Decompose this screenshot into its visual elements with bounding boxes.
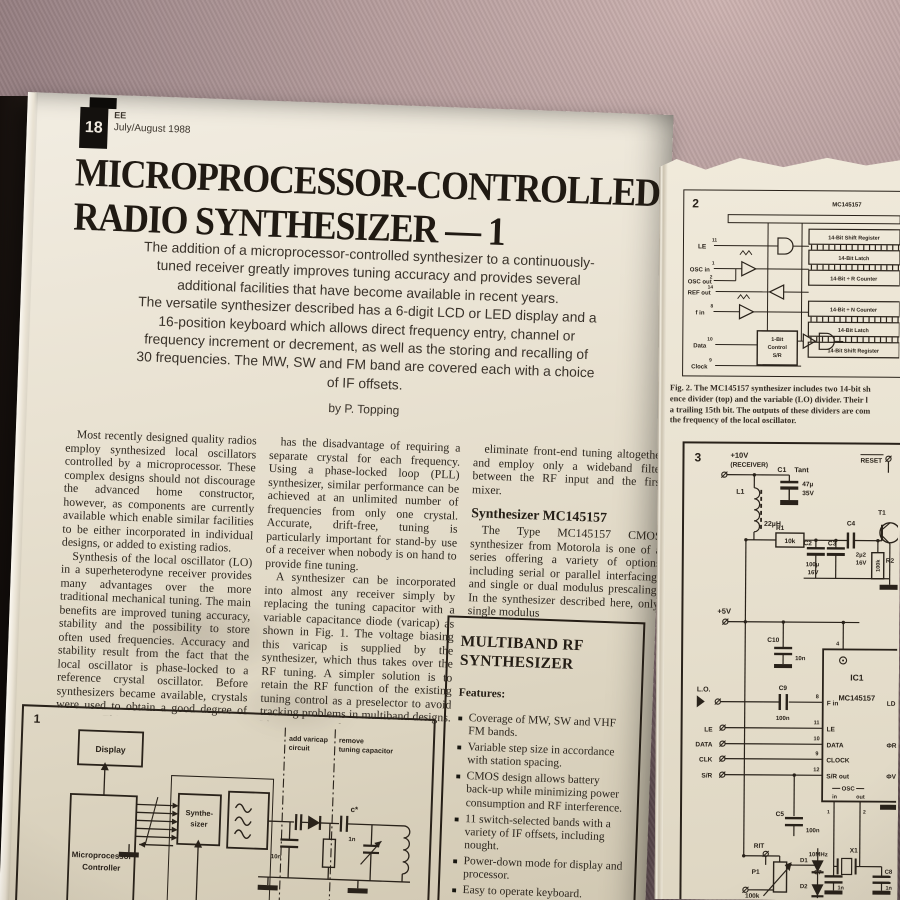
fig3-pin-clock: CLOCK [826, 757, 849, 764]
fig3-pin-le: LE [827, 726, 836, 733]
fig3-r2-value: 100k [876, 559, 882, 572]
fig3-pin-phi-r: ΦR [886, 743, 896, 750]
fig3-c10-label: C10 [767, 637, 779, 644]
feature-text: Variable step size in accordance with st… [467, 741, 627, 773]
synth-label-1: Synthe- [185, 808, 213, 818]
fig3-r1-label: R1 [776, 525, 785, 532]
fig3-terminal-data: DATA [695, 741, 712, 748]
feature-item: ■11 switch-selected bands with a variety… [453, 812, 624, 857]
column2-paragraph-1: has the disadvantage of requiring a sepa… [265, 435, 461, 577]
bullet-square-icon: ■ [455, 770, 461, 809]
column1-paragraph-2: Synthesis of the local oscillator (LO) i… [56, 549, 253, 720]
fig3-osc-in: in [832, 794, 838, 800]
article-standfirst: The addition of a microprocessor-control… [134, 238, 601, 402]
fig3-pin-ld: LD [887, 701, 896, 708]
fig3-d1-label: D1 [800, 858, 808, 864]
features-box-title: MULTIBAND RF SYNTHESIZER [460, 632, 631, 676]
fig2-pin-le: LE [698, 243, 707, 250]
left-page: 18 EE July/August 1988 MICROPROCESSOR-CO… [0, 92, 674, 900]
fig3-c2-value-1: 100µ [806, 562, 820, 568]
fig3-c5-value: 100n [806, 828, 820, 834]
fig3-ic1-label: IC1 [850, 673, 864, 683]
page-number-badge: 18 [79, 107, 108, 149]
fig3-x1-label: X1 [850, 848, 858, 855]
fig3-c9-label: C9 [779, 685, 788, 692]
figure-2-number: 2 [692, 196, 699, 210]
feature-text: 11 switch-selected bands with a variety … [464, 813, 624, 858]
fig3-c1-value-1: 47µ [802, 481, 813, 488]
remove-cap-label-2: tuning capacitor [339, 747, 394, 756]
fig3-pin-sr-out: S/R out [826, 773, 850, 780]
fig3-c1-value-2: 35V [802, 490, 814, 497]
magazine-name: EE [114, 110, 126, 120]
feature-text: CMOS design allows battery back-up while… [465, 771, 625, 816]
fig3-terminal-sr: S/R [701, 772, 712, 779]
figure-1-number: 1 [33, 712, 40, 726]
micro-label-2: Controller [82, 862, 121, 872]
fig3-x1-value: 10MHz [809, 852, 828, 858]
right-page: 2 MC145157 14-Bit Shift Register 14-Bit … [654, 155, 900, 900]
fig2-pin-clock: Clock [691, 364, 708, 370]
fig3-pin-data-number: 10 [814, 736, 820, 742]
features-box: MULTIBAND RF SYNTHESIZER Features: ■Cove… [436, 615, 646, 900]
magazine-photo: 18 EE July/August 1988 MICROPROCESSOR-CO… [0, 0, 900, 900]
feature-item: ■Variable step size in accordance with s… [456, 741, 627, 773]
fig2-pin-data-number: 10 [707, 336, 713, 342]
figure-2-caption: Fig. 2. The MC145157 synthesizer include… [670, 383, 900, 428]
fig1-boxes [66, 730, 287, 900]
fig2-block-shift-register-bottom: 14-Bit Shift Register [827, 348, 879, 354]
fig3-c7-value: 1n [837, 885, 844, 891]
micro-label-1: Microprocessor [72, 850, 132, 861]
bullet-square-icon: ■ [451, 884, 456, 897]
figure-2-diagram: 2 MC145157 14-Bit Shift Register 14-Bit … [683, 190, 900, 374]
c-star-value: 1n [348, 837, 356, 843]
column3-paragraph-1: eliminate front-end tuning altogether an… [472, 442, 665, 503]
fig2-pin-osc-in-number: 1 [712, 261, 715, 267]
fig3-reset-label: RESET [860, 458, 882, 465]
fig3-c5-label: C5 [776, 811, 785, 818]
display-block-label: Display [95, 744, 126, 755]
fig3-pin-phi-v: ΦV [886, 774, 896, 781]
feature-text: Easy to operate keyboard. [462, 884, 582, 900]
fig1-wires [99, 768, 418, 900]
figure-1-diagram: 1 Display Microprocessor Controller Synt… [16, 706, 430, 900]
column-2: has the disadvantage of requiring a sepa… [260, 435, 461, 728]
issue-date: July/August 1988 [114, 122, 191, 136]
fig3-r1-value: 10k [784, 538, 795, 545]
fig2-block-shift-register-top: 14-Bit Shift Register [828, 235, 880, 241]
feature-text: Power-down mode for display and processo… [463, 855, 623, 887]
fig3-l1-label: L1 [736, 489, 744, 496]
fig2-pin-osc-in: OSC in [690, 267, 710, 273]
fig3-c2-value-2: 16V [808, 570, 819, 576]
fig3-c1-label: C1 [777, 467, 786, 474]
fig2-pin-ref-out-number: 14 [708, 284, 714, 290]
standfirst-paragraph-2: The versatile synthesizer described has … [134, 293, 599, 401]
fig3-symbols [695, 453, 898, 896]
feature-text: Coverage of MW, SW and VHF FM bands. [468, 712, 628, 744]
fig3-d2-label: D2 [800, 884, 808, 890]
features-subtitle: Features: [459, 687, 629, 705]
fig3-c7-label: C7 [814, 870, 822, 876]
fig3-5v-label: +5V [717, 607, 731, 616]
bullet-square-icon: ■ [453, 812, 459, 851]
figure-2-panel: 2 MC145157 14-Bit Shift Register 14-Bit … [682, 189, 900, 378]
feature-item: ■Power-down mode for display and process… [452, 855, 623, 887]
feature-item: ■Coverage of MW, SW and VHF FM bands. [457, 712, 628, 744]
fig3-r2-label: R2 [886, 558, 895, 565]
fig2-pin-f-in-number: 8 [711, 304, 714, 310]
fig2-pin-osc-out-number: 2 [710, 275, 713, 281]
features-list: ■Coverage of MW, SW and VHF FM bands. ■V… [448, 712, 628, 900]
caption-line-4: the frequency of the local oscillator. [670, 416, 900, 428]
fig3-pin-fin: F in [827, 700, 839, 707]
fig3-c3-label: C3 [828, 540, 837, 547]
bullet-square-icon: ■ [457, 712, 463, 738]
page-number: 18 [85, 119, 103, 138]
fig3-lo-label: L.O. [697, 686, 711, 693]
fig2-ctrl-label-3: S/R [773, 353, 782, 359]
fig3-p1-value: 100k [745, 893, 760, 899]
fig2-gates [739, 238, 835, 350]
figure-3-number: 3 [694, 450, 701, 464]
feature-item: ■Easy to operate keyboard. [451, 884, 621, 900]
fig3-pin-fin-number: 8 [816, 694, 819, 700]
fig2-ctrl-label-2: Control [768, 345, 788, 351]
fig2-block-latch-bottom: 14-Bit Latch [838, 328, 869, 334]
fig3-10v-label: +10V [730, 451, 748, 460]
figure-3-panel: 3 +10V (RECEIVER) L1 22µH C1 Tant 47µ 35… [679, 441, 900, 900]
fig3-c2-label: C2 [804, 540, 813, 547]
fig2-pin-clock-number: 9 [709, 358, 712, 364]
fig3-receiver-label: (RECEIVER) [730, 462, 768, 469]
add-varicap-label-2: circuit [289, 745, 311, 753]
fig2-ctrl-label-1: 1-Bit [771, 337, 783, 343]
fig3-pin-le-number: 11 [814, 720, 820, 726]
fig2-chip-label: MC145157 [832, 202, 862, 208]
column-1: Most recently designed quality radios em… [56, 428, 257, 721]
fig3-c4-label: C4 [847, 520, 856, 527]
fig2-pin-le-number: 11 [712, 238, 717, 244]
fig3-c4-value-2: 16V [856, 561, 867, 567]
synth-label-2: sizer [190, 819, 207, 829]
fig3-osc-label: OSC [842, 786, 856, 792]
fig3-c9-value: 100n [776, 716, 790, 722]
fig3-ic1-chip: MC145157 [838, 693, 875, 702]
column3-paragraph-2: The Type MC145157 CMOS synthesizer from … [467, 523, 661, 624]
fig3-c10-value: 10n [795, 656, 806, 662]
fig3-pin-sr-number: 12 [813, 767, 819, 773]
fig3-c8-value: 1n [885, 886, 892, 892]
fig3-terminal-le: LE [704, 726, 713, 733]
fig3-pin4-number: 4 [836, 641, 840, 647]
fig3-rit-label: RIT [754, 843, 765, 850]
fig3-osc-out: out [856, 795, 865, 801]
bullet-square-icon: ■ [452, 855, 458, 881]
feature-item: ■CMOS design allows battery back-up whil… [455, 770, 626, 815]
fig3-osc-pin1-number: 1 [827, 809, 830, 815]
fig3-pin-clock-number: 9 [815, 751, 818, 757]
add-varicap-label-1: add varicap [289, 736, 328, 744]
column1-paragraph-1: Most recently designed quality radios em… [62, 428, 257, 556]
fig2-pin-f-in: f in [695, 310, 704, 316]
fig3-c4-value-1: 2µ2 [856, 553, 867, 559]
column-3: eliminate front-end tuning altogether an… [467, 442, 664, 625]
figure-1-panel: 1 Display Microprocessor Controller Synt… [14, 704, 436, 900]
cap-10n-value: 10n [271, 854, 282, 860]
fig2-pin-data: Data [693, 343, 707, 349]
fig2-pin-ref-out: REF out [688, 290, 711, 296]
fig3-c8-label: C8 [885, 870, 893, 876]
fig3-osc-pin2-number: 2 [863, 810, 866, 816]
bullet-square-icon: ■ [456, 741, 462, 767]
c-star-label: c* [350, 805, 359, 814]
fig2-block-r-counter: 14-Bit ÷ R Counter [830, 276, 878, 282]
fig3-pin-data: DATA [826, 742, 843, 749]
fig2-block-latch-top: 14-Bit Latch [838, 256, 869, 262]
remove-cap-label-1: remove [339, 738, 364, 746]
fig3-t1-label: T1 [878, 510, 886, 517]
fig2-block-n-counter: 14-Bit ÷ N Counter [830, 307, 878, 313]
fig3-p1-label: P1 [752, 869, 760, 876]
column2-paragraph-2: A synthesizer can be incorporated into a… [260, 570, 456, 728]
fig3-c1-type: Tant [794, 467, 809, 474]
fig3-terminal-clk: CLK [699, 756, 713, 763]
figure-3-diagram: 3 +10V (RECEIVER) L1 22µH C1 Tant 47µ 35… [681, 443, 898, 898]
